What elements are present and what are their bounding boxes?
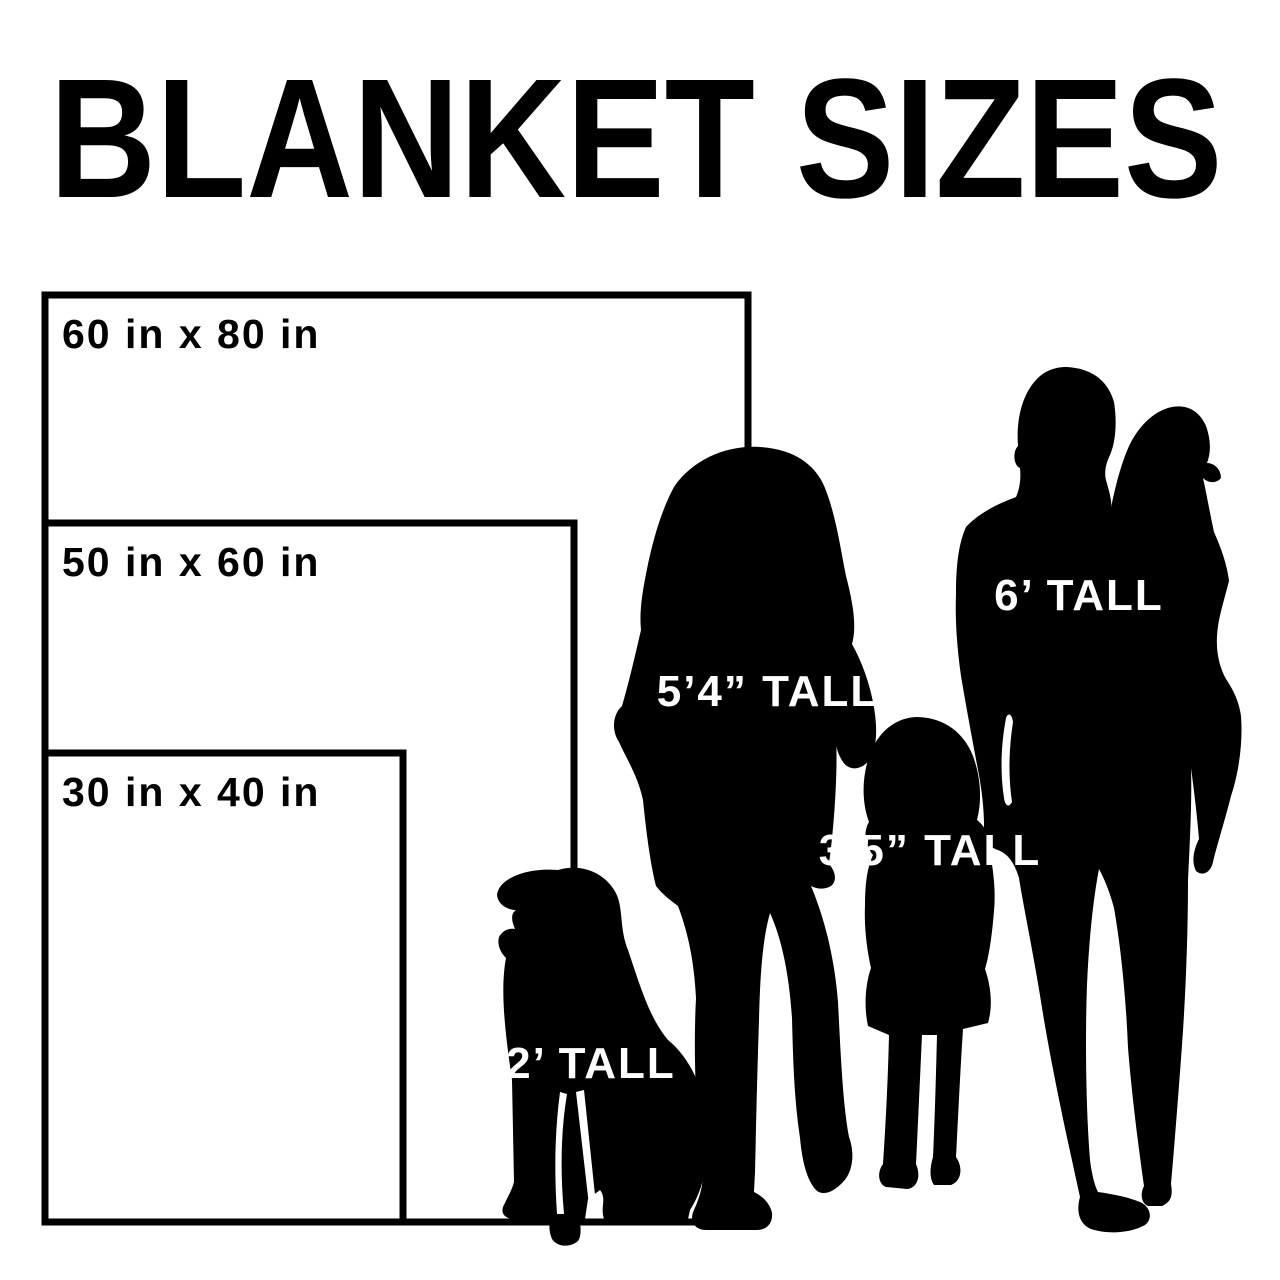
blanket-label-60x80: 60 in x 80 in: [62, 311, 320, 357]
man-height-label: 6’ TALL: [994, 571, 1164, 620]
woman-height-label: 5’4” TALL: [657, 667, 880, 716]
blanket-label-50x60: 50 in x 60 in: [62, 539, 320, 585]
blanket-sizes-graphic: BLANKET SIZES 60 in x 80 in 50 in x 60 i…: [0, 0, 1280, 1280]
dog-height-label: 2’ TALL: [506, 1039, 676, 1088]
girl-silhouette: [864, 717, 995, 1189]
infographic-canvas: BLANKET SIZES 60 in x 80 in 50 in x 60 i…: [0, 0, 1280, 1280]
blanket-label-30x40: 30 in x 40 in: [62, 769, 320, 815]
girl-height-label: 3’5” TALL: [819, 826, 1042, 875]
man-and-toddler-silhouette: [956, 367, 1242, 1232]
blanket-rect-30x40: [45, 753, 403, 1222]
page-title: BLANKET SIZES: [50, 44, 1223, 234]
